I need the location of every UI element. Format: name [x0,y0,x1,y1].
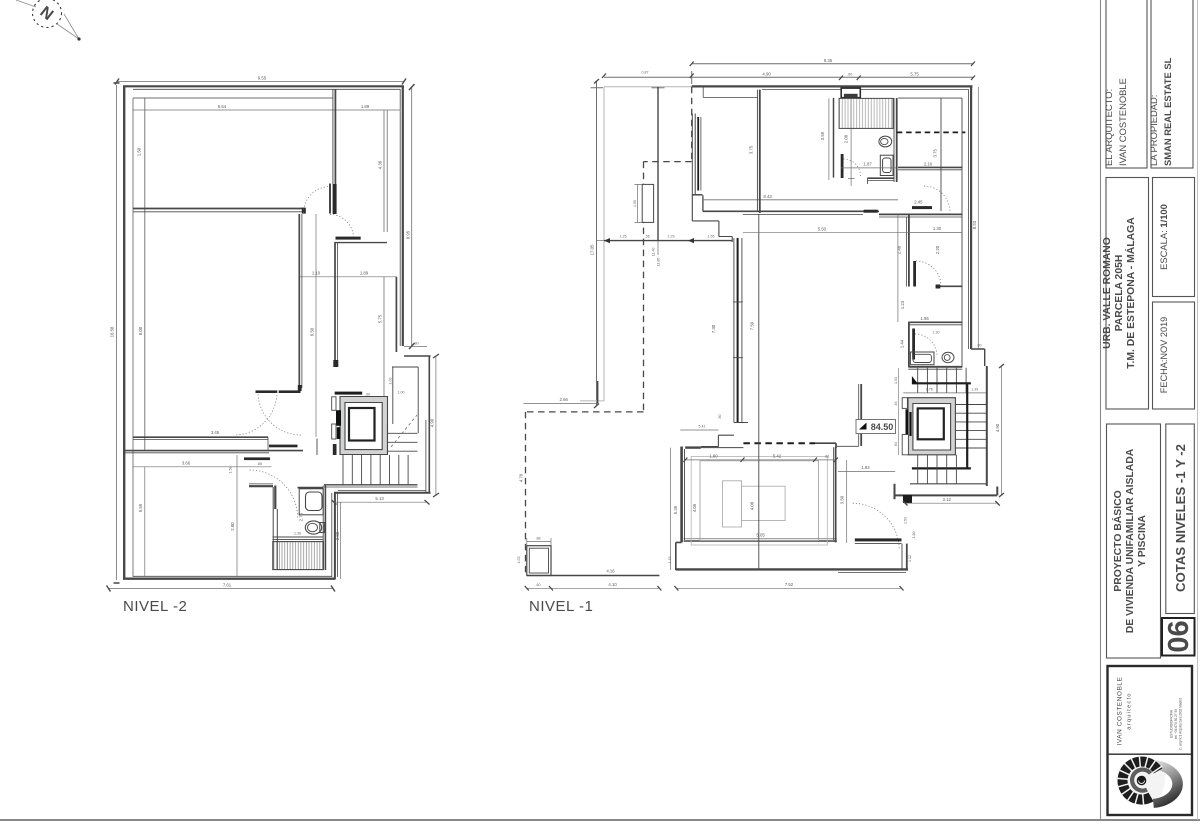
svg-text:DE VIVIENDA UNIFAMILIAR AISLAD: DE VIVIENDA UNIFAMILIAR AISLADA [1125,448,1136,633]
svg-text:5.75: 5.75 [378,314,383,323]
svg-text:0.87: 0.87 [642,71,649,75]
svg-text:8.93: 8.93 [972,220,977,229]
svg-text:1.00: 1.00 [398,391,405,395]
svg-text:1.89: 1.89 [361,104,370,109]
svg-text:2.66: 2.66 [560,397,569,402]
svg-text:1.15: 1.15 [668,557,672,564]
svg-text:1.29: 1.29 [668,235,675,239]
svg-text:4.08: 4.08 [750,501,755,510]
svg-text:3.75: 3.75 [749,145,754,154]
svg-text:5.75: 5.75 [910,72,919,77]
svg-text:6.64: 6.64 [218,104,227,109]
svg-text:8.50: 8.50 [310,327,315,336]
svg-text:2.45: 2.45 [914,200,923,205]
svg-text:1.50: 1.50 [633,200,637,207]
svg-text:2.08: 2.08 [843,134,848,143]
svg-text:16.58: 16.58 [110,326,115,337]
svg-text:1.80: 1.80 [912,532,916,539]
svg-text:1.87: 1.87 [863,162,872,167]
svg-text:7.52: 7.52 [785,582,794,587]
svg-text:3.12: 3.12 [943,497,952,502]
svg-text:5.13: 5.13 [375,496,384,501]
svg-text:3.75: 3.75 [933,149,938,158]
svg-text:7.61: 7.61 [223,583,232,588]
svg-text:8.00: 8.00 [138,326,143,335]
svg-text:2.75: 2.75 [299,512,304,521]
svg-text:tel: +34 670 30 27 59: tel: +34 670 30 27 59 [1174,709,1178,739]
svg-text:1.36: 1.36 [294,532,301,536]
svg-text:1.39: 1.39 [971,388,978,392]
svg-text:4.36: 4.36 [378,160,383,169]
svg-text:1.83: 1.83 [861,465,870,470]
svg-text:11.85: 11.85 [657,258,661,267]
svg-text:2.46: 2.46 [896,245,901,254]
svg-text:4.10: 4.10 [608,582,617,587]
svg-text:5.50: 5.50 [818,226,827,231]
svg-text:SMAN REAL ESTATE SL: SMAN REAL ESTATE SL [1162,57,1173,166]
svg-text:4.05: 4.05 [692,503,697,512]
svg-text:2.80: 2.80 [230,522,235,531]
svg-text:.68: .68 [824,455,829,459]
svg-text:Y PISCINA: Y PISCINA [1137,515,1148,567]
svg-text:5.41: 5.41 [699,425,706,429]
svg-text:4.90: 4.90 [995,423,1000,432]
svg-text:1.30: 1.30 [933,226,942,231]
svg-text:06: 06 [1163,620,1195,652]
svg-text:1.12: 1.12 [908,555,912,562]
svg-text:ESTUDIO/OFICINA: ESTUDIO/OFICINA [1170,709,1174,738]
svg-text:5.39: 5.39 [673,505,678,514]
svg-text:5.42: 5.42 [773,454,782,459]
svg-text:17.05: 17.05 [590,244,595,255]
svg-text:8.43: 8.43 [763,194,772,199]
svg-text:1.76: 1.76 [926,388,933,392]
svg-text:T.M. DE ESTEPONA - MÁLAGA: T.M. DE ESTEPONA - MÁLAGA [1124,217,1137,369]
svg-text:4.16: 4.16 [606,568,615,573]
svg-text:.60: .60 [847,73,852,77]
svg-text:.63: .63 [894,442,898,447]
svg-text:URB. VALLE ROMANO: URB. VALLE ROMANO [1102,237,1113,349]
svg-text:.60: .60 [536,583,541,587]
svg-text:9.55: 9.55 [258,76,267,81]
svg-text:1.89: 1.89 [360,270,369,275]
svg-text:IVAN COSTENOBLE: IVAN COSTENOBLE [1117,78,1128,166]
svg-text:LA PROPIEDAD:: LA PROPIEDAD: [1148,95,1159,166]
svg-text:1.58: 1.58 [229,467,233,474]
svg-text:.80: .80 [977,344,982,348]
svg-text:1.55: 1.55 [708,235,715,239]
svg-text:1.03: 1.03 [389,378,393,385]
svg-text:EL ARQUITECTO:: EL ARQUITECTO: [1103,89,1114,166]
svg-text:1.53: 1.53 [903,517,907,524]
svg-text:3.45: 3.45 [211,430,220,435]
svg-text:7.30: 7.30 [711,324,716,333]
svg-text:1.25: 1.25 [620,235,627,239]
svg-text:IVAN COSTENOBLE: IVAN COSTENOBLE [1117,677,1124,746]
svg-text:3.66: 3.66 [182,461,191,466]
svg-text:3.50: 3.50 [839,495,844,504]
svg-text:4.90: 4.90 [762,72,771,77]
svg-text:ESCALA: 1/100: ESCALA: 1/100 [1158,204,1169,270]
svg-text:arquitecto: arquitecto [1127,692,1133,729]
svg-text:1.44: 1.44 [900,339,905,348]
svg-text:.88: .88 [536,537,541,541]
svg-text:7.50: 7.50 [750,321,755,330]
svg-text:.46: .46 [894,402,898,407]
svg-text:.56: .56 [645,235,650,239]
svg-text:1.03: 1.03 [517,557,521,564]
svg-text:.50: .50 [718,415,722,420]
svg-text:NIVEL -1: NIVEL -1 [529,598,593,615]
svg-text:2.20: 2.20 [935,245,940,254]
svg-text:4.70: 4.70 [518,473,523,482]
svg-text:1.30: 1.30 [933,331,940,335]
svg-text:2.16: 2.16 [924,162,933,167]
svg-text:9.35: 9.35 [824,58,833,63]
svg-text:.60: .60 [365,393,370,397]
svg-text:1.23: 1.23 [900,300,905,309]
svg-text:3.59: 3.59 [820,131,825,140]
svg-text:5.59: 5.59 [138,503,143,512]
svg-text:2.80: 2.80 [335,531,340,540]
svg-text:PARCELA 205H: PARCELA 205H [1114,255,1125,332]
svg-text:11.40: 11.40 [652,248,656,257]
svg-text:COTAS NIVELES -1 Y -2: COTAS NIVELES -1 Y -2 [1173,444,1188,592]
svg-text:.80: .80 [414,342,419,346]
svg-text:N: N [37,4,57,25]
svg-text:1.50: 1.50 [137,147,142,156]
svg-text:PROYECTO BÁSICO: PROYECTO BÁSICO [1111,490,1124,591]
svg-text:4.90: 4.90 [429,418,434,427]
svg-text:C. arq/ IC1 Arquitectura 2002: C. arq/ IC1 Arquitectura 2002 Madrid [1179,698,1183,750]
svg-text:.85: .85 [257,462,262,466]
svg-text:1.90: 1.90 [709,454,718,459]
svg-text:FECHA:NOV 2019: FECHA:NOV 2019 [1159,317,1169,394]
svg-text:1.03: 1.03 [894,377,898,384]
svg-text:1.95: 1.95 [920,316,929,321]
svg-text:84.50: 84.50 [871,422,894,432]
svg-text:5.05: 5.05 [756,533,765,538]
svg-text:NIVEL -2: NIVEL -2 [123,598,187,615]
svg-text:8.95: 8.95 [406,230,411,239]
